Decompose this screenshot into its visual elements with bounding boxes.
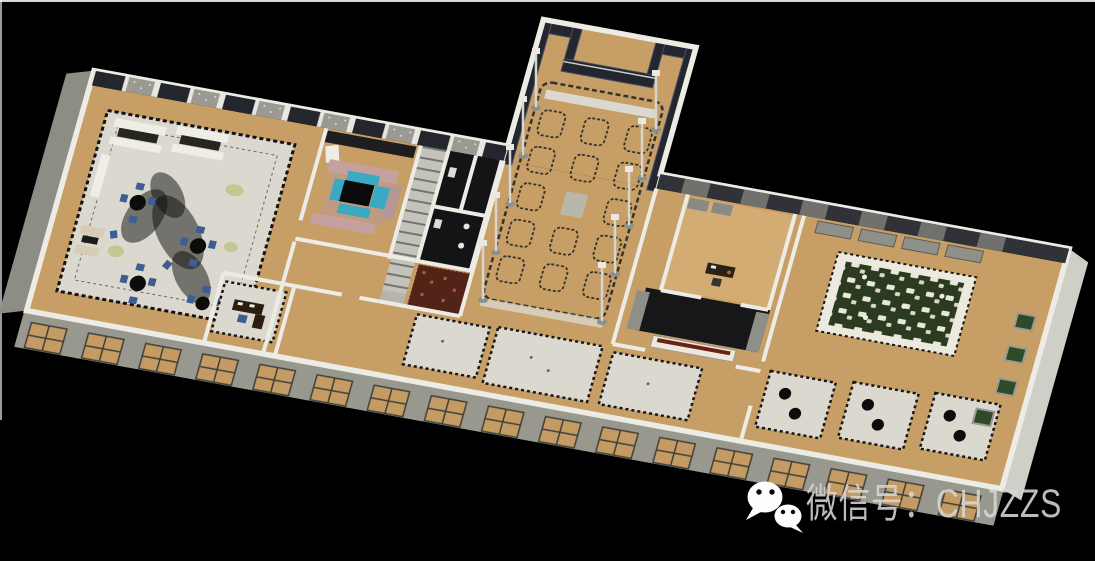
wechat-watermark: 微信号：CHJZZS — [746, 482, 1062, 534]
floorplan-3d-view: 微信号：CHJZZS — [0, 0, 1095, 561]
render-canvas: 微信号：CHJZZS — [0, 0, 1095, 561]
building — [0, 0, 1095, 529]
watermark-text: 微信号：CHJZZS — [806, 482, 1062, 526]
